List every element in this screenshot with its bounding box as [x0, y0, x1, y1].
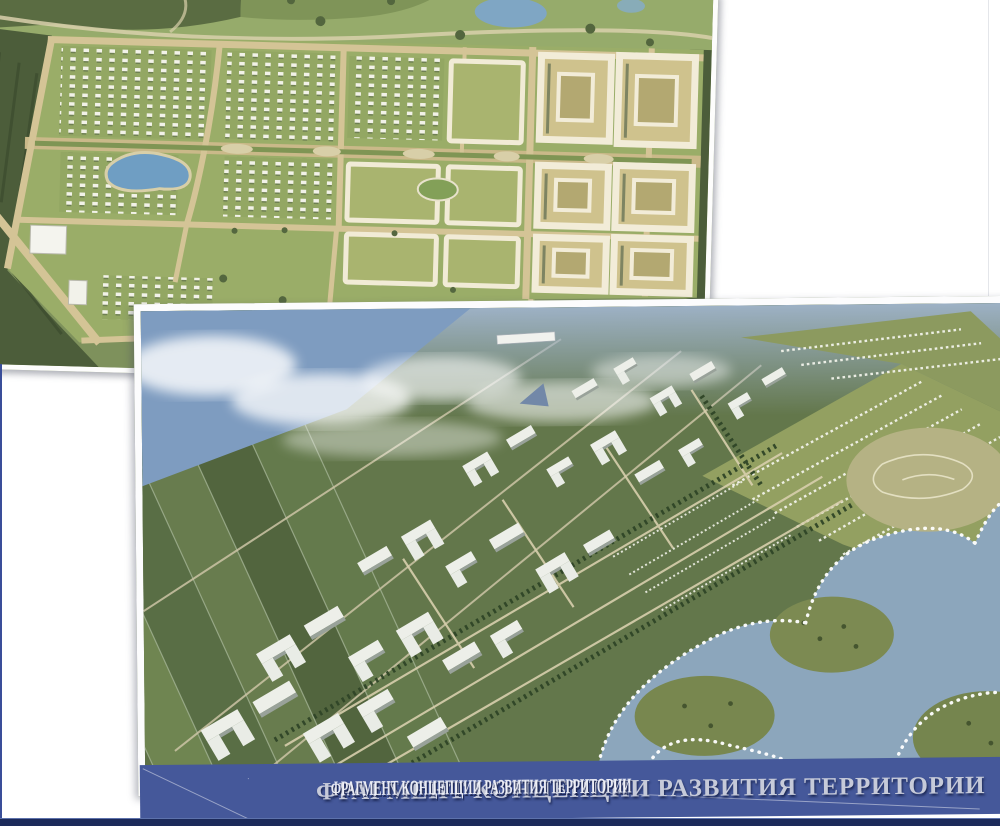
slide-left-border	[0, 364, 2, 820]
slide-edge-line	[988, 0, 989, 298]
presentation-slide: ФРАГМЕНТ КОНЦЕПЦИИ РАЗВИТИЯ ТЕРРИТОРИИ Ф…	[0, 0, 1000, 826]
footer-strip	[0, 818, 1000, 826]
aerial-art	[141, 303, 1000, 775]
title-banner: ФРАГМЕНТ КОНЦЕПЦИИ РАЗВИТИЯ ТЕРРИТОРИИ Ф…	[140, 757, 1000, 822]
slide-title-echo-watermark: ФРАГМЕНТ КОНЦЕПЦИИ РАЗВИТИЯ ТЕРРИТОРИИ	[331, 773, 667, 801]
banner-diagonal-line	[143, 768, 254, 821]
masterplan-aerial-3d-image	[134, 296, 1000, 797]
banner-vertical-line	[248, 778, 249, 779]
